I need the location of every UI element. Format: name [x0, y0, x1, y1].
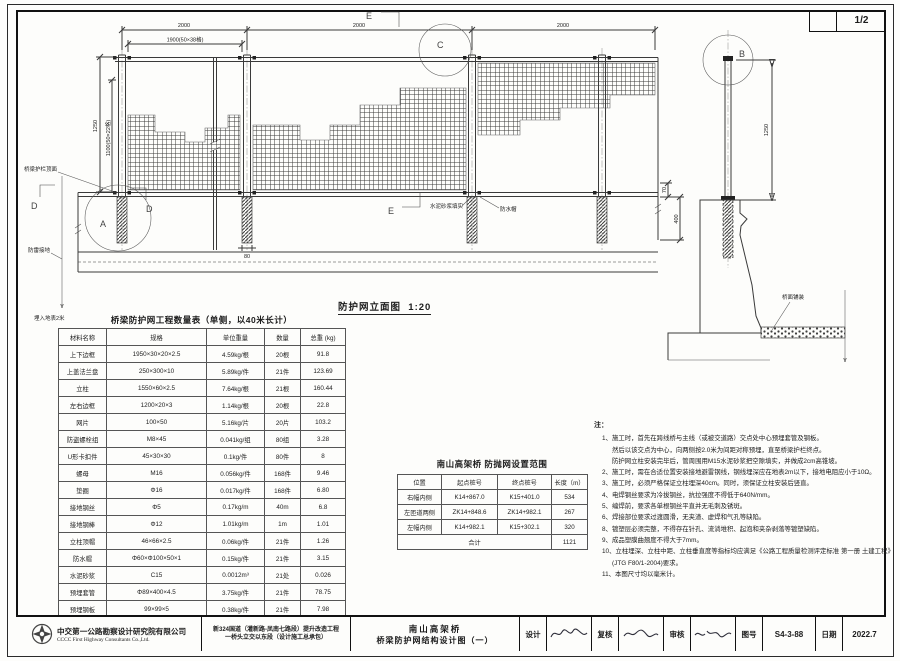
table-row: 左右边框1200×20×31.14kg/根20根22.8 — [59, 397, 346, 414]
notes-heading: 注： — [594, 420, 896, 431]
design-label: 设计 — [519, 617, 546, 651]
qt-header-total: 总重 (kg) — [301, 329, 346, 346]
table-cell: 160.44 — [301, 380, 346, 397]
table-cell: Φ12 — [107, 516, 207, 533]
note-line: 10、立柱埋深、立柱中距、立柱垂直度等指标均应满足《公路工程质量检测评定标准 第… — [594, 546, 896, 557]
label-mortar-fill: 水泥砂浆填实 — [430, 202, 464, 210]
table-cell: 20片 — [265, 414, 301, 431]
table-cell: Φ5 — [107, 499, 207, 516]
dim-bay2: 2000 — [353, 23, 365, 29]
table-cell: 168件 — [265, 482, 301, 499]
note-line: (JTG F80/1-2004)要求。 — [594, 558, 896, 569]
quantity-table-header: 材料名称 规格 单位重量 数量 总重 (kg) — [59, 329, 346, 346]
dim-mesh-width: 1900(50×38格) — [167, 36, 204, 44]
table-row: 接地钢丝Φ50.17kg/m40m6.8 — [59, 499, 346, 516]
table-cell: 上盖法兰盘 — [59, 363, 107, 380]
table-cell: 1950×30×20×2.5 — [107, 346, 207, 363]
deck-pavement — [761, 327, 845, 338]
notes-block: 注： 1、施工时，首先在跨线桥与主线（或被交道路）交点处中心预埋套管及钢板。然后… — [594, 420, 896, 580]
table-cell: 1550×60×2.5 — [107, 380, 207, 397]
section-letter-d-right: D — [146, 204, 153, 214]
table-row: 上下边框1950×30×20×2.54.59kg/根20根91.8 — [59, 346, 346, 363]
table-cell: 250×300×10 — [107, 363, 207, 380]
quantity-table: 材料名称 规格 单位重量 数量 总重 (kg) 上下边框1950×30×20×2… — [58, 328, 346, 618]
note-line: 3、施工时，必须严格保证立柱埋深40cm。同时，须保证立柱安装后竖直。 — [594, 478, 896, 489]
table-cell: 100×50 — [107, 414, 207, 431]
signature-scribble-icon — [693, 626, 733, 642]
table-cell: 立柱顶帽 — [59, 533, 107, 550]
table-cell: 0.0012m³ — [207, 567, 265, 584]
table-cell: 4.59kg/根 — [207, 346, 265, 363]
table-cell: 1.01kg/m — [207, 516, 265, 533]
dim-bay3: 2000 — [557, 23, 569, 29]
elevation-title: 防护网立面图 — [338, 302, 401, 313]
table-cell: 0.17kg/m — [207, 499, 265, 516]
table-cell: 3.28 — [301, 431, 346, 448]
table-cell: 防水帽 — [59, 550, 107, 567]
label-water-cap: 防水帽 — [500, 205, 517, 213]
table-cell: M16 — [107, 465, 207, 482]
company-name-en: CCCC First Highway Consultants Co.,Ltd. — [57, 637, 186, 643]
table-cell: 防盗螺栓组 — [59, 431, 107, 448]
detail-letter-a: A — [100, 219, 106, 229]
check-signature — [618, 617, 663, 651]
table-cell: 1.14kg/根 — [207, 397, 265, 414]
table-cell: 80件 — [265, 448, 301, 465]
table-row: 左匝道两侧ZK14+848.6ZK14+982.1267 — [398, 505, 588, 520]
range-table: 位置 起点桩号 终点桩号 长度（m） 右幅内侧K14+867.0K15+401.… — [397, 474, 588, 550]
table-row: 防盗螺栓组M8×450.041kg/组80组3.28 — [59, 431, 346, 448]
company-logo-icon — [31, 623, 53, 645]
project-line2: 一桥头立交以东段（设计施工总承包） — [225, 634, 327, 643]
qt-header-spec: 规格 — [107, 329, 207, 346]
note-line: 8、镀塑层必须完整，不得存在针孔、流淌堆积、起泡和夹杂剥落等镀塑缺陷。 — [594, 524, 896, 535]
table-cell: 0.056kg/件 — [207, 465, 265, 482]
note-line: 9、成品塑膜曲翘度不得大于7mm。 — [594, 535, 896, 546]
note-line: 然后以该交点为中心，向两侧按2.0米为间距对称预埋，直至桥梁护栏终点。 — [594, 445, 896, 456]
table-cell: 320 — [552, 520, 588, 535]
table-cell: 5.89kg/件 — [207, 363, 265, 380]
table-row: 水泥砂浆C150.0012m³21处0.026 — [59, 567, 346, 584]
table-row: 立柱顶帽46×66×2.50.06kg/件21件1.26 — [59, 533, 346, 550]
signature-scribble-icon — [549, 626, 589, 642]
table-cell: K15+302.1 — [498, 520, 552, 535]
drawing-title-cell: 南山高架桥 桥梁防护网结构设计图（一） — [350, 617, 519, 651]
table-cell: 9.46 — [301, 465, 346, 482]
table-cell: M8×45 — [107, 431, 207, 448]
table-cell: 0.06kg/件 — [207, 533, 265, 550]
dim-side-height: 1250 — [764, 124, 770, 136]
table-cell: 上下边框 — [59, 346, 107, 363]
dim-mesh-height: 1100(50×22格) — [104, 120, 112, 157]
company-name-cn: 中交第一公路勘察设计研究院有限公司 — [57, 626, 186, 637]
range-table-title: 南山高架桥 防抛网设置范围 — [392, 458, 592, 470]
rt-header-start: 起点桩号 — [442, 475, 498, 490]
date-label: 日期 — [815, 617, 842, 651]
dim-offset-70: 70 — [662, 187, 668, 193]
range-table-header: 位置 起点桩号 终点桩号 长度（m） — [398, 475, 588, 490]
note-line: 防护网立柱安装完毕后，管周围用M15水泥砂浆把空隙填实，并做成2cm高锥坡。 — [594, 456, 896, 467]
rt-header-length: 长度（m） — [552, 475, 588, 490]
project-cell: 新324国道（灌新路-凤南七路段）提升改造工程 一桥头立交以东段（设计施工总承包… — [201, 617, 350, 651]
dim-post-height: 1250 — [93, 120, 99, 132]
table-cell: 8 — [301, 448, 346, 465]
table-cell: 21件 — [265, 363, 301, 380]
detail-letter-b: B — [739, 49, 745, 59]
table-row: U形卡扣件45×30×300.1kg/件80件8 — [59, 448, 346, 465]
notes-list: 1、施工时，首先在跨线桥与主线（或被交道路）交点处中心预埋套管及钢板。然后以该交… — [594, 433, 896, 580]
table-cell: 1.01 — [301, 516, 346, 533]
table-cell: 0.026 — [301, 567, 346, 584]
elevation-view: 2000 2000 2000 1900(50×38格) 1250 1100(50… — [24, 11, 684, 322]
qt-header-unit-weight: 单位重量 — [207, 329, 265, 346]
table-cell: 20根 — [265, 346, 301, 363]
title-block: 中交第一公路勘察设计研究院有限公司 CCCC First Highway Con… — [16, 615, 886, 651]
detail-circle-c — [419, 24, 471, 76]
section-letter-d-left: D — [31, 201, 38, 211]
table-cell: 267 — [552, 505, 588, 520]
label-lightning-ground: 防雷接地 — [28, 246, 51, 254]
dim-embed-400: 400 — [674, 214, 680, 223]
table-cell: 5.16kg/片 — [207, 414, 265, 431]
detail-letter-c: C — [437, 40, 444, 50]
table-cell: Φ16 — [107, 482, 207, 499]
table-cell: 3.15 — [301, 550, 346, 567]
sheet-number-value: S4-3-88 — [762, 617, 815, 651]
table-cell: 21处 — [265, 567, 301, 584]
table-cell: 21件 — [265, 550, 301, 567]
table-cell: 91.8 — [301, 346, 346, 363]
design-signature — [546, 617, 591, 651]
dim-bay1: 2000 — [178, 23, 190, 29]
embedded-post-bases — [117, 197, 607, 243]
table-cell: 立柱 — [59, 380, 107, 397]
table-cell: 21件 — [265, 584, 301, 601]
note-line: 11、本图尺寸均以毫米计。 — [594, 569, 896, 580]
note-line: 4、电焊钢丝要求为冷拔钢丝，抗拉强度不得低于640N/mm。 — [594, 490, 896, 501]
table-cell: 1.26 — [301, 533, 346, 550]
table-cell: ZK14+848.6 — [442, 505, 498, 520]
table-cell: 接地钢丝 — [59, 499, 107, 516]
quantity-table-title: 桥梁防护网工程数量表（单侧，以40米长计） — [58, 314, 345, 326]
table-cell: 22.8 — [301, 397, 346, 414]
table-cell: 6.80 — [301, 482, 346, 499]
table-cell: 6.8 — [301, 499, 346, 516]
rt-total-value: 1121 — [552, 535, 588, 550]
table-cell: K15+401.0 — [498, 490, 552, 505]
drawing-sheet: 1/2 — [0, 0, 900, 661]
table-cell: U形卡扣件 — [59, 448, 107, 465]
review-signature — [690, 617, 735, 651]
table-row: 立柱1550×60×2.57.64kg/根21根160.44 — [59, 380, 346, 397]
table-cell: 0.017kg/件 — [207, 482, 265, 499]
qt-header-qty: 数量 — [265, 329, 301, 346]
date-value: 2022.7 — [842, 617, 886, 651]
table-cell: 78.75 — [301, 584, 346, 601]
table-cell: 0.1kg/件 — [207, 448, 265, 465]
table-cell: K14+982.1 — [442, 520, 498, 535]
section-mark-d-left — [40, 185, 55, 197]
qt-header-material: 材料名称 — [59, 329, 107, 346]
review-label: 审核 — [663, 617, 690, 651]
table-cell: 0.041kg/组 — [207, 431, 265, 448]
rt-header-end: 终点桩号 — [498, 475, 552, 490]
table-cell: Φ60×Φ100×50×1 — [107, 550, 207, 567]
table-cell: 右幅内侧 — [398, 490, 442, 505]
table-cell: 80组 — [265, 431, 301, 448]
table-cell: 46×66×2.5 — [107, 533, 207, 550]
table-cell: 168件 — [265, 465, 301, 482]
table-row: 防水帽Φ60×Φ100×50×10.15kg/件21件3.15 — [59, 550, 346, 567]
section-mark-e-top — [381, 12, 399, 27]
table-row: 接地钢棒Φ121.01kg/m1m1.01 — [59, 516, 346, 533]
table-cell: K14+867.0 — [442, 490, 498, 505]
rt-total-label: 合计 — [398, 535, 552, 550]
table-cell: 20根 — [265, 397, 301, 414]
table-cell: 21件 — [265, 533, 301, 550]
table-cell: 水泥砂浆 — [59, 567, 107, 584]
table-cell: 预埋套管 — [59, 584, 107, 601]
drawing-title-line1: 南山高架桥 — [409, 623, 462, 635]
company-cell: 中交第一公路勘察设计研究院有限公司 CCCC First Highway Con… — [16, 617, 201, 651]
elevation-scale: 1:20 — [408, 302, 431, 313]
table-cell: 接地钢棒 — [59, 516, 107, 533]
table-cell: 1m — [265, 516, 301, 533]
note-line: 1、施工时，首先在跨线桥与主线（或被交道路）交点处中心预埋套管及钢板。 — [594, 433, 896, 444]
table-cell: ZK14+982.1 — [498, 505, 552, 520]
table-cell: 7.64kg/根 — [207, 380, 265, 397]
section-letter-e-top: E — [366, 11, 372, 21]
project-line1: 新324国道（灌新路-凤南七路段）提升改造工程 — [213, 626, 339, 635]
table-cell: 0.15kg/件 — [207, 550, 265, 567]
dim-base-width: 80 — [244, 254, 250, 260]
side-view: B 1250 桥面铺装 — [668, 30, 845, 360]
table-cell: 534 — [552, 490, 588, 505]
range-table-total-row: 合计 1121 — [398, 535, 588, 550]
section-mark-e-bottom — [402, 192, 420, 207]
table-cell: 网片 — [59, 414, 107, 431]
check-label: 复核 — [591, 617, 618, 651]
table-row: 上盖法兰盘250×300×105.89kg/件21件123.69 — [59, 363, 346, 380]
table-row: 左幅内侧K14+982.1K15+302.1320 — [398, 520, 588, 535]
drawing-title-line2: 桥梁防护网结构设计图（一） — [377, 635, 494, 646]
table-row: 网片100×505.16kg/片20片103.2 — [59, 414, 346, 431]
elevation-title-group: 防护网立面图 1:20 — [338, 297, 431, 315]
rt-header-location: 位置 — [398, 475, 442, 490]
signature-scribble-icon — [621, 626, 661, 642]
table-row: 预埋套管Φ89×400×4.53.75kg/件21件78.75 — [59, 584, 346, 601]
note-line: 5、编焊前，要求各单根钢丝平直并无毛刺及锈斑。 — [594, 501, 896, 512]
table-cell: C15 — [107, 567, 207, 584]
table-cell: 垫圈 — [59, 482, 107, 499]
table-cell: 左幅内侧 — [398, 520, 442, 535]
table-row: 垫圈Φ160.017kg/件168件6.80 — [59, 482, 346, 499]
table-cell: 3.75kg/件 — [207, 584, 265, 601]
table-cell: 21根 — [265, 380, 301, 397]
table-cell: 103.2 — [301, 414, 346, 431]
note-line: 6、焊接部位要求过渡圆滑，无夹渣、虚焊和气孔等缺陷。 — [594, 512, 896, 523]
table-cell: 123.69 — [301, 363, 346, 380]
label-guardrail-top: 桥梁护栏顶面 — [24, 165, 58, 173]
table-row: 螺母M160.056kg/件168件9.46 — [59, 465, 346, 482]
sheet-number-label: 图号 — [735, 617, 762, 651]
table-cell: 螺母 — [59, 465, 107, 482]
table-cell: 左匝道两侧 — [398, 505, 442, 520]
table-cell: 45×30×30 — [107, 448, 207, 465]
table-cell: Φ89×400×4.5 — [107, 584, 207, 601]
label-deck-pavement: 桥面铺装 — [782, 293, 805, 301]
table-cell: 1200×20×3 — [107, 397, 207, 414]
table-cell: 40m — [265, 499, 301, 516]
note-line: 2、施工时，需在合适位置安装接地避雷钢线，钢线埋深应在地表2m以下，接地电阻应小… — [594, 467, 896, 478]
table-cell: 左右边框 — [59, 397, 107, 414]
section-letter-e-bottom: E — [388, 206, 394, 216]
table-row: 右幅内侧K14+867.0K15+401.0534 — [398, 490, 588, 505]
